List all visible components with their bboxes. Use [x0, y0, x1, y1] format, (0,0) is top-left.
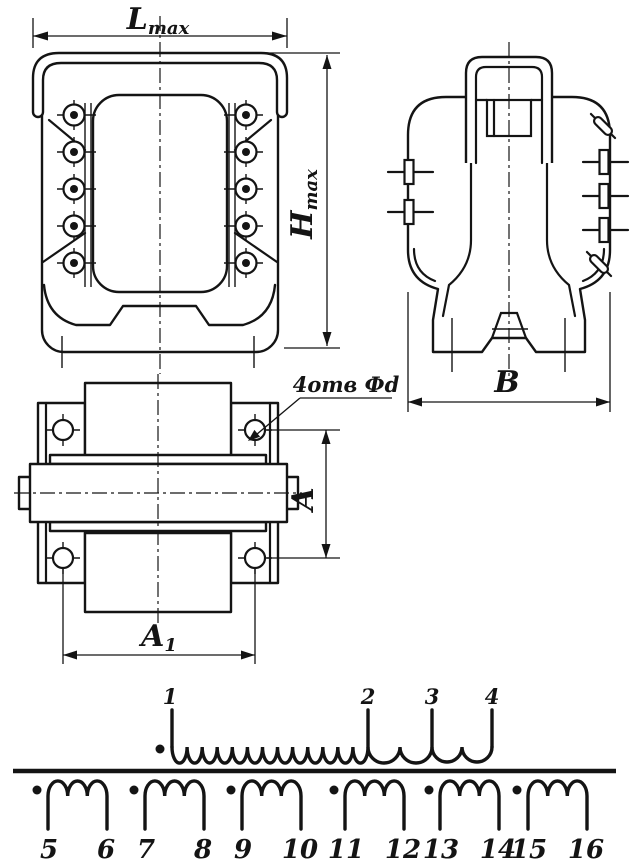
a1-label: A1 [138, 619, 177, 656]
polarity-dot [130, 786, 139, 795]
secondary-coil [242, 781, 301, 829]
secondary-coil [145, 781, 204, 829]
arrowhead [241, 651, 255, 660]
terminal-label: 16 [568, 835, 604, 865]
a-label: A [286, 487, 321, 513]
terminal-label: 3 [425, 684, 440, 709]
polarity-dot [330, 786, 339, 795]
terminal-label: 10 [282, 835, 318, 865]
primary-coil [172, 747, 492, 763]
secondary-coil [528, 781, 587, 829]
transformer-technical-drawing: Lmax Hmax [0, 0, 640, 867]
terminal-label: 7 [137, 835, 155, 865]
terminal-label: 13 [423, 835, 459, 865]
arrowhead [272, 32, 287, 41]
terminal-label: 1 [163, 684, 178, 709]
secondary-coil [345, 781, 404, 829]
terminal-label: 12 [385, 835, 421, 865]
arrowhead [33, 32, 48, 41]
h-max-label: Hmax [285, 169, 322, 240]
secondary-coil [440, 781, 499, 829]
terminal-label: 5 [40, 835, 58, 865]
polarity-dot [156, 745, 165, 754]
arrowhead [322, 544, 331, 558]
dimension-l-max: Lmax [33, 2, 287, 48]
secondary-winding: 11 12 [328, 781, 421, 865]
polarity-dot [33, 786, 42, 795]
side-view [388, 42, 628, 378]
holes-note-label: 4отв Фd [293, 372, 400, 397]
arrowhead [63, 651, 77, 660]
terminal-label: 4 [485, 684, 500, 709]
terminal-label: 8 [193, 835, 212, 865]
secondary-winding: 13 14 [423, 781, 516, 865]
terminal-label: 6 [97, 835, 115, 865]
secondary-coil [48, 781, 107, 829]
arrowhead [408, 398, 422, 407]
l-max-label: Lmax [126, 2, 190, 39]
terminal-label: 11 [328, 835, 364, 865]
drawing-page: Lmax Hmax [0, 0, 640, 867]
polarity-dot [425, 786, 434, 795]
arrowhead [322, 430, 331, 444]
primary-winding: 1 2 3 4 [156, 684, 500, 763]
arrowhead [323, 332, 332, 346]
top-view [14, 374, 302, 624]
secondary-winding: 15 16 [511, 781, 604, 865]
arrowhead [323, 55, 332, 69]
front-view [33, 16, 287, 374]
b-label: В [493, 365, 519, 400]
polarity-dot [513, 786, 522, 795]
terminal-label: 15 [511, 835, 547, 865]
terminal-label: 9 [234, 835, 252, 865]
secondary-winding: 9 10 [227, 781, 319, 865]
arrowhead [596, 398, 610, 407]
secondary-winding: 5 6 [33, 781, 116, 865]
terminal-label: 2 [360, 684, 376, 709]
polarity-dot [227, 786, 236, 795]
secondary-winding: 7 8 [130, 781, 213, 865]
winding-schematic: 1 2 3 4 5 6 7 8 9 10 11 12 [13, 684, 616, 865]
